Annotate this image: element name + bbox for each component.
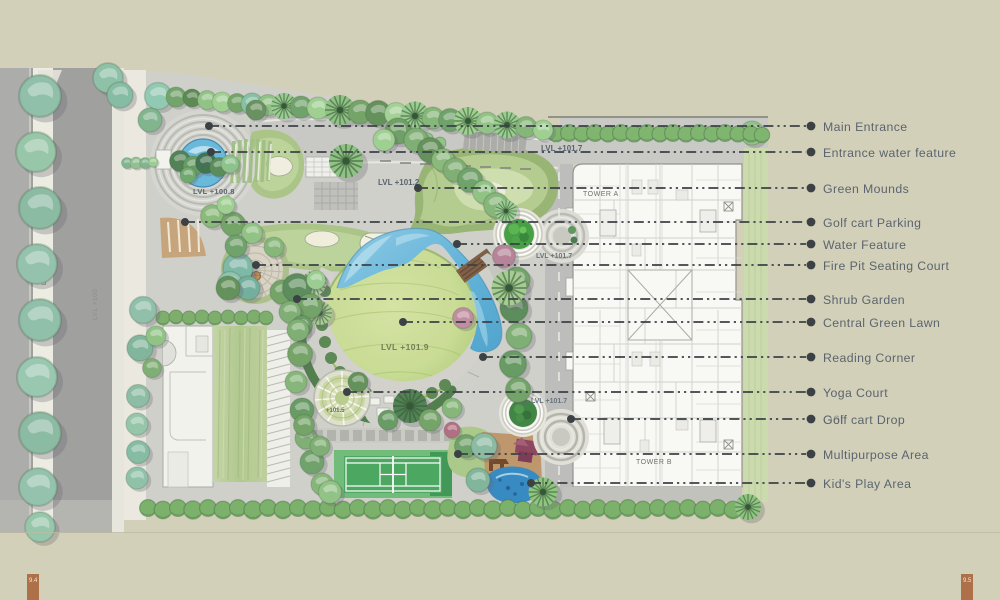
- svg-text:O6f: O6f: [823, 413, 844, 427]
- svg-text:Kid's Play Area: Kid's Play Area: [823, 477, 911, 491]
- svg-text:Golf cart Parking: Golf cart Parking: [823, 216, 921, 230]
- svg-text:Central Green Lawn: Central Green Lawn: [823, 316, 940, 330]
- svg-text:Reading Corner: Reading Corner: [823, 351, 915, 365]
- svg-text:Green Mounds: Green Mounds: [823, 182, 909, 196]
- svg-text:Entrance water feature: Entrance water feature: [823, 146, 956, 160]
- svg-text:9.4: 9.4: [29, 578, 38, 584]
- svg-text:Shrub Garden: Shrub Garden: [823, 293, 905, 307]
- svg-text:Yoga Court: Yoga Court: [823, 386, 888, 400]
- svg-text:Water Feature: Water Feature: [823, 238, 906, 252]
- svg-text:Multipurpose Area: Multipurpose Area: [823, 448, 929, 462]
- svg-text:Fire Pit Seating Court: Fire Pit Seating Court: [823, 259, 950, 273]
- svg-text:Main Entrance: Main Entrance: [823, 120, 908, 134]
- svg-text:9.5: 9.5: [963, 578, 972, 584]
